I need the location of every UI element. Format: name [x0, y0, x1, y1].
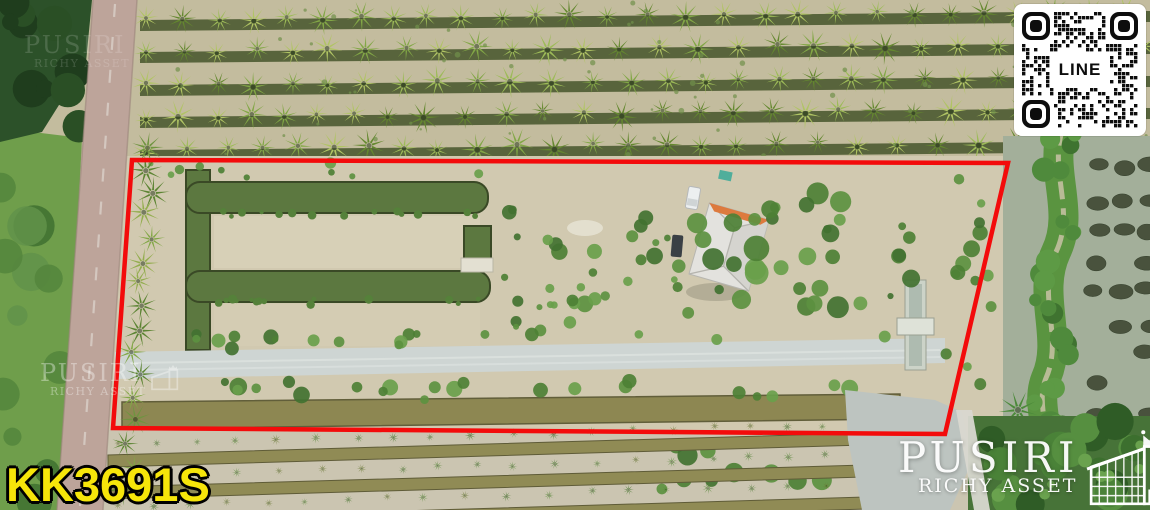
qr-line-label: LINE — [1055, 60, 1106, 80]
brand-logo: PUSIRI RICHY ASSET — [898, 438, 1150, 508]
pond-walkway — [461, 258, 493, 272]
line-qr-code: LINE — [1014, 4, 1146, 136]
coconut-plantation — [0, 0, 1150, 172]
crown-house-icon — [1085, 424, 1150, 508]
dark-car — [671, 235, 684, 258]
brand-subtitle: RICHY ASSET — [898, 475, 1079, 497]
brand-name: PUSIRI — [898, 438, 1079, 478]
aerial-listing-photo: LINE PUSIRI RICHY ASSET PUSIRI RICHY ASS… — [0, 0, 1150, 510]
listing-code-label: KK3691S — [6, 461, 210, 508]
